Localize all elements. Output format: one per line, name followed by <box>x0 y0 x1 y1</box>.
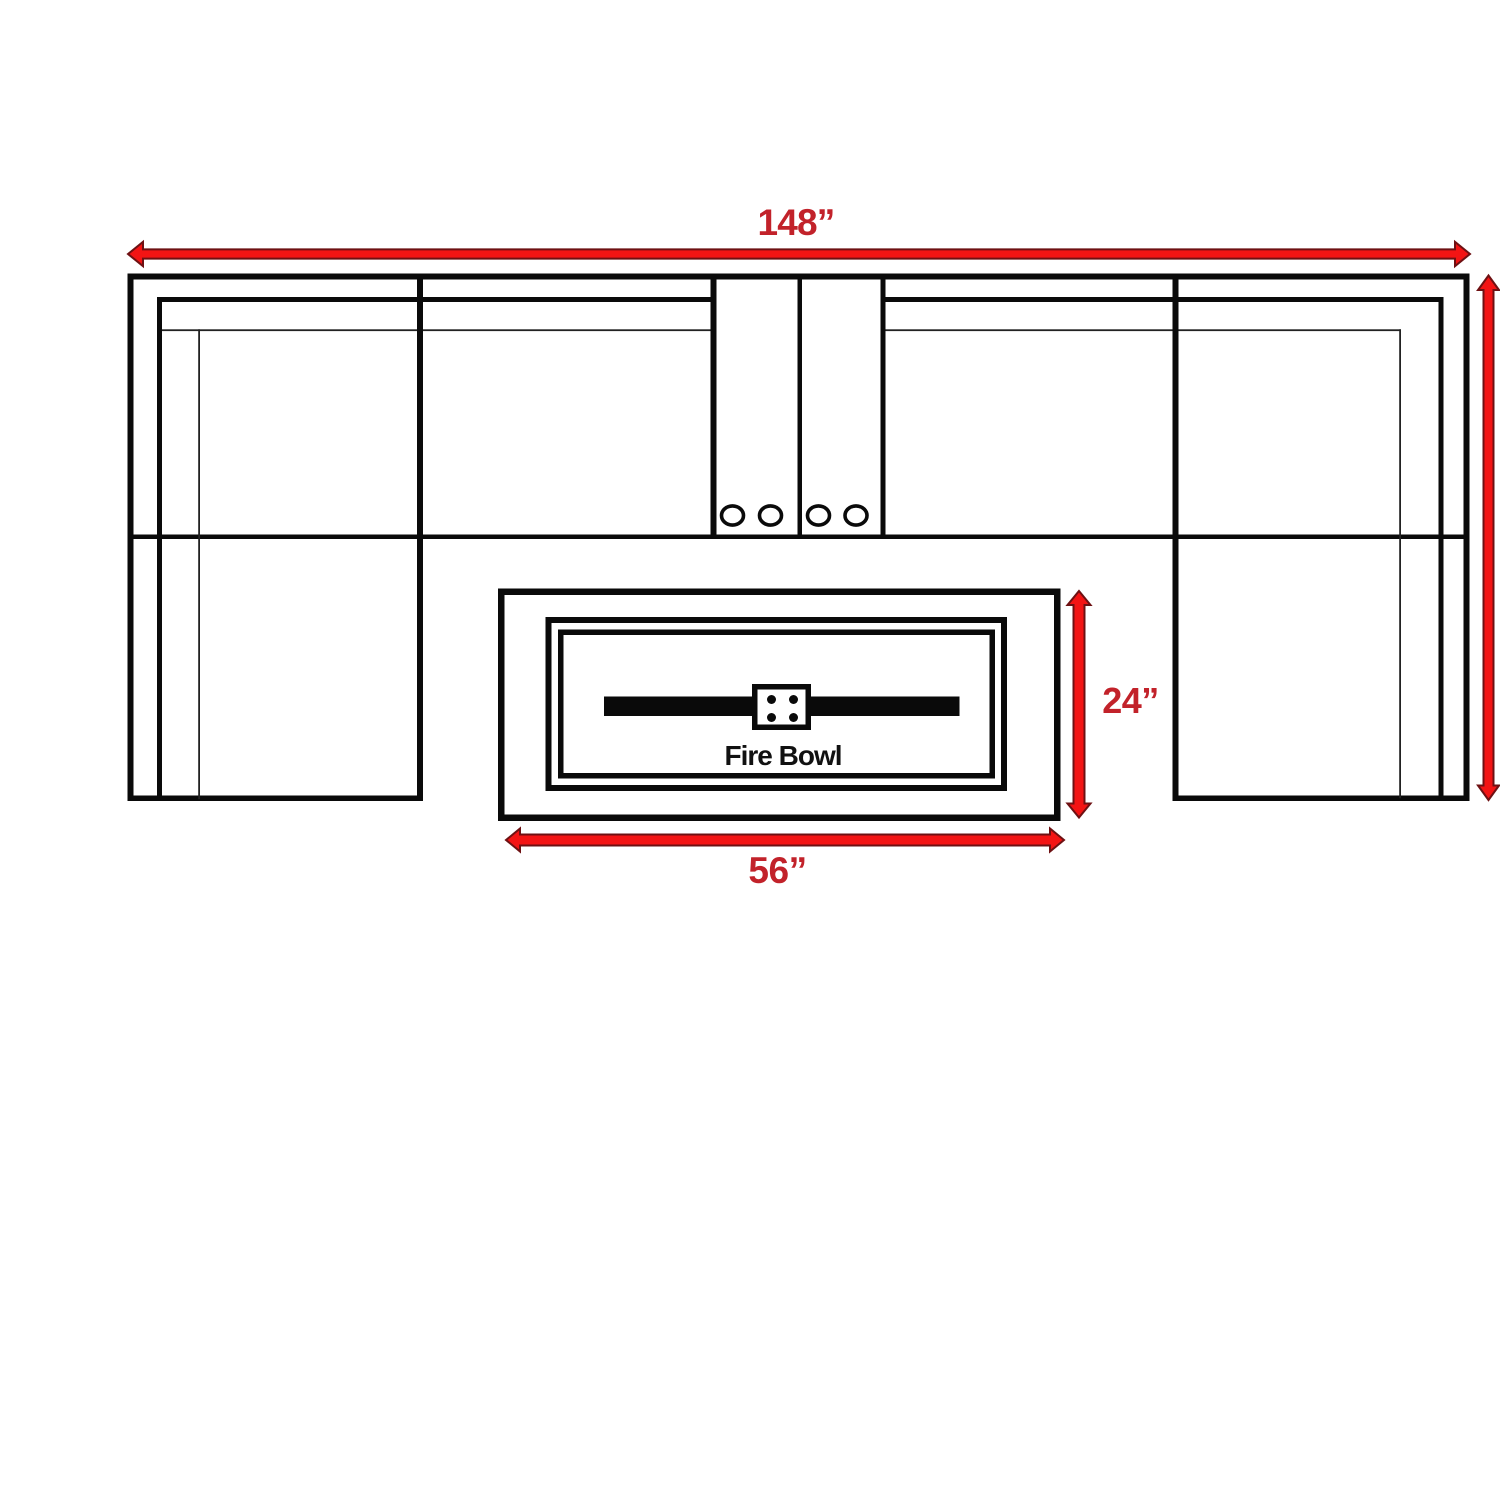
svg-text:24”: 24” <box>1102 680 1159 721</box>
svg-text:56”: 56” <box>748 850 806 891</box>
svg-text:Fire Bowl: Fire Bowl <box>724 740 841 771</box>
svg-text:148”: 148” <box>757 202 834 243</box>
